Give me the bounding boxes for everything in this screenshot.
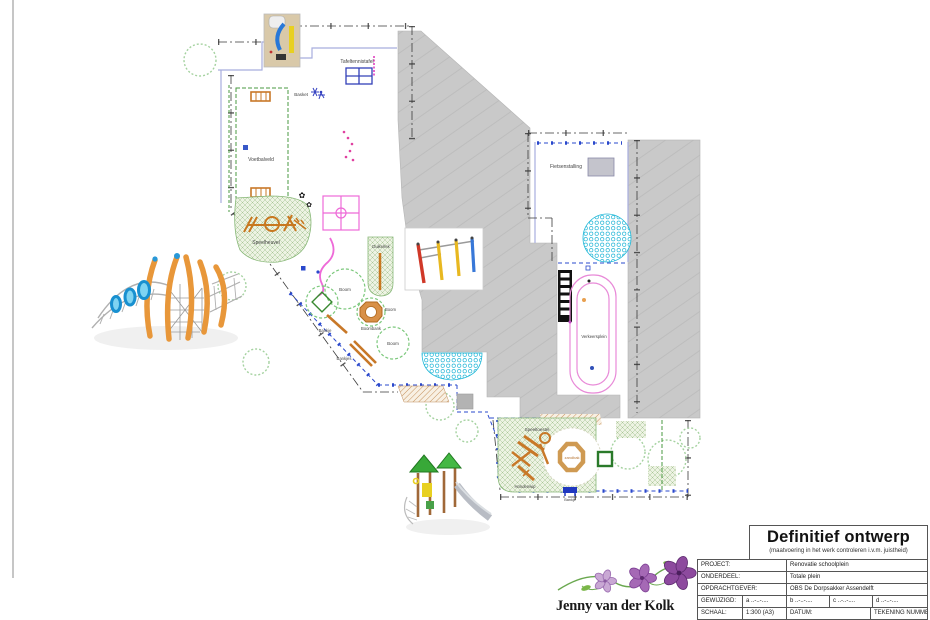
hatch-patch — [616, 421, 646, 438]
drawing-title: Definitief ontwerp — [750, 528, 927, 547]
company-logo: Jenny van der Kolk — [552, 548, 702, 620]
voetbalveld-area — [229, 85, 288, 212]
speelheuvel-area — [235, 196, 311, 262]
label-fietsenstalling: Fietsenstalling — [550, 164, 582, 170]
gewijzigd-b: b ..-..-.... — [786, 596, 829, 607]
duikelrek-photo-inset — [405, 228, 483, 290]
tree-bankje — [306, 286, 338, 318]
paving-strip — [398, 386, 449, 402]
datum-label: DATUM: — [786, 608, 870, 619]
logo-flowers — [552, 548, 702, 598]
label-basket: Basket — [294, 92, 309, 97]
goal-icon — [251, 188, 270, 197]
svg-text:✿: ✿ — [306, 202, 312, 209]
gewijzigd-label: GEWIJZIGD: — [698, 596, 742, 607]
label-boom-c: Boom — [387, 341, 399, 346]
gewijzigd-c: c ..-..-.... — [829, 596, 872, 607]
label-speeltoestel: Speeltoestel — [525, 427, 550, 432]
magenta-elements — [318, 56, 374, 296]
rubber-halfcircle — [422, 353, 482, 380]
flower-dark — [662, 555, 696, 591]
drawing-subtitle: (maatvoering in het werk controleren i.v… — [750, 548, 927, 554]
opdrachtgever-label: OPDRACHTGEVER: — [698, 584, 786, 595]
table-row-onderdeel: ONDERDEEL: Totale plein — [698, 571, 927, 583]
label-bankje: Bankje — [319, 328, 332, 333]
label-boombank: Boombank — [361, 326, 382, 331]
label-bankje-2: Bankje — [564, 498, 576, 502]
rubber-circle — [583, 214, 631, 262]
play-tower-render — [405, 453, 491, 535]
project-label: PROJECT: — [698, 560, 786, 571]
label-hondenwip: Hondenwip — [515, 484, 537, 489]
gewijzigd-a: a ..-..-.... — [742, 596, 786, 607]
drawing-sheet: ✿ ✿ — [0, 0, 930, 620]
label-speelheuvel: Speelheuvel — [252, 240, 280, 246]
schaal-label: SCHAAL: — [698, 608, 742, 619]
flower-mid — [628, 563, 657, 593]
title-block-header: Definitief ontwerp (maatvoering in het w… — [749, 525, 928, 560]
project-value: Renovatie schoolplein — [786, 560, 927, 571]
opdrachtgever-value: OBS De Dorpsakker Assendelft — [786, 584, 927, 595]
green-square-element — [598, 452, 612, 466]
table-row-schaal: SCHAAL: 1:300 (A3) DATUM: TEKENING NUMME… — [698, 607, 927, 619]
climbing-structure-render — [92, 253, 242, 350]
basket-icon — [311, 88, 325, 99]
blue-marker — [301, 266, 306, 271]
label-boom-a: Boom — [339, 287, 351, 292]
onderdeel-value: Totale plein — [786, 572, 927, 583]
table-row-opdrachtgever: OPDRACHTGEVER: OBS De Dorpsakker Assende… — [698, 583, 927, 595]
label-tafeltennistafel: Tafeltennistafel — [340, 59, 373, 65]
bench-icons — [327, 315, 376, 366]
blue-bench-icon — [563, 487, 577, 496]
tekening-nummer-label: TEKENING NUMMER: — [870, 608, 927, 619]
fietsenstalling-rect — [588, 158, 614, 176]
table-row-gewijzigd: GEWIJZIGD: a ..-..-.... b ..-..-.... c .… — [698, 595, 927, 607]
logo-name: Jenny van der Kolk — [556, 598, 674, 615]
gewijzigd-d: d ..-..-.... — [872, 596, 927, 607]
title-block: Definitief ontwerp (maatvoering in het w… — [697, 525, 928, 620]
label-voetbalveld: Voetbalveld — [248, 157, 274, 163]
label-verkeersplein: Verkeersplein — [581, 334, 607, 339]
label-bankjes: Bankjes — [337, 356, 352, 361]
title-block-table: PROJECT: Renovatie schoolplein ONDERDEEL… — [697, 559, 928, 620]
schaal-value: 1:300 (A3) — [742, 608, 786, 619]
tafeltennistafel-icon — [346, 68, 372, 84]
blue-marker — [243, 145, 248, 150]
gray-slab — [457, 394, 473, 409]
svg-text:✿: ✿ — [299, 191, 306, 200]
boombank-icon — [360, 302, 382, 322]
bench-square-icon — [312, 292, 332, 312]
label-boom-b: Boom — [385, 307, 396, 312]
verkeersplein-area — [558, 270, 616, 393]
label-duikelrek: Duikelrek — [372, 244, 390, 249]
label-zandbak: zandbak — [564, 455, 579, 460]
slide-photo-inset — [264, 14, 300, 67]
building-wing-right — [628, 140, 700, 418]
goal-icon — [251, 92, 270, 101]
blue-marker-dot — [316, 270, 319, 273]
onderdeel-label: ONDERDEEL: — [698, 572, 786, 583]
table-row-project: PROJECT: Renovatie schoolplein — [698, 560, 927, 571]
